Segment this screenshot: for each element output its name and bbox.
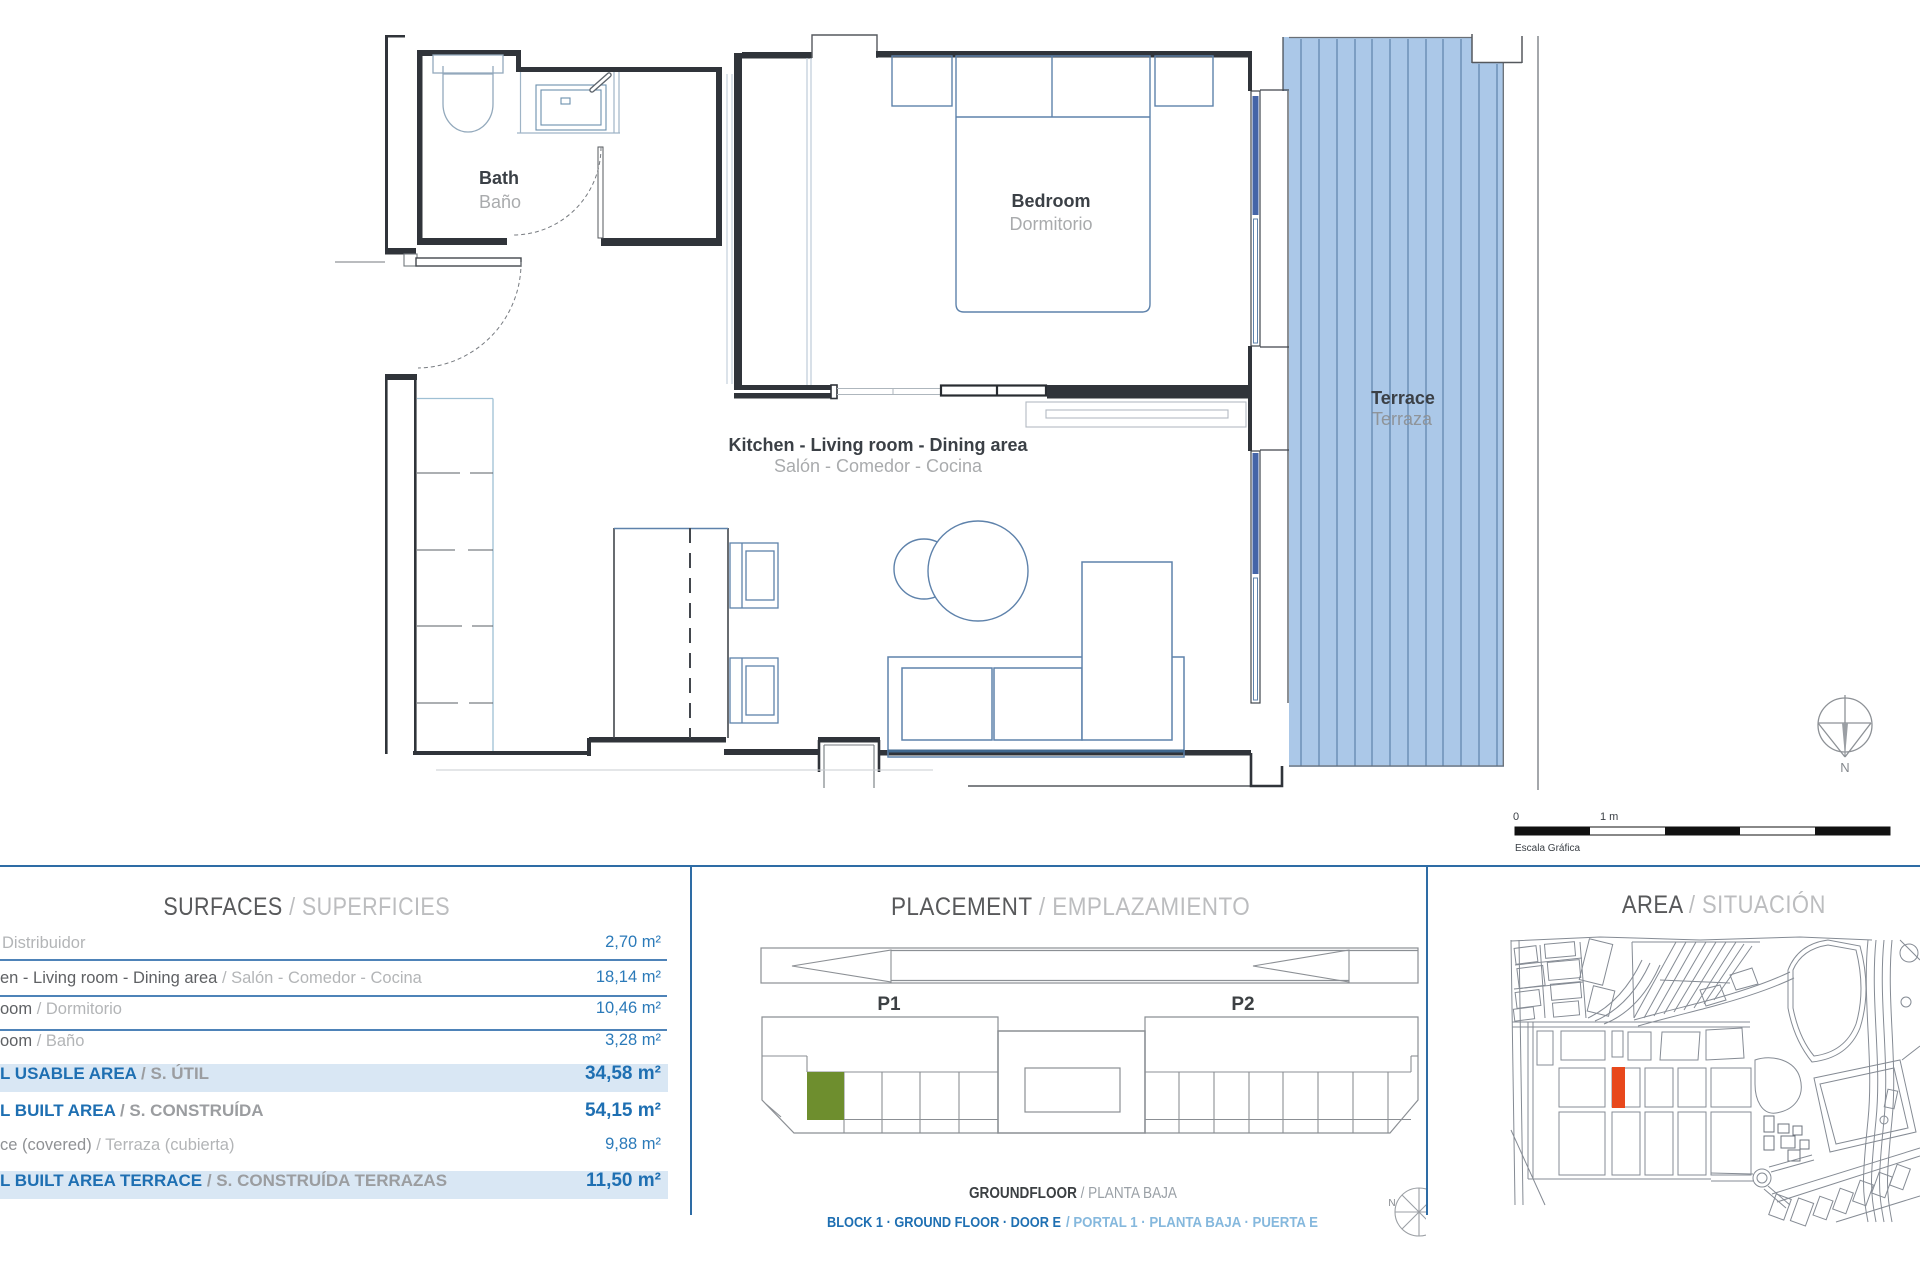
svg-text:Escala Gráfica: Escala Gráfica bbox=[1515, 843, 1580, 854]
svg-text:Terraza: Terraza bbox=[1372, 409, 1433, 429]
svg-text:/ PORTAL 1 · PLANTA BAJA · PUE: / PORTAL 1 · PLANTA BAJA · PUERTA E bbox=[1066, 1215, 1318, 1231]
svg-text:Dormitorio: Dormitorio bbox=[1009, 214, 1092, 234]
svg-text:N: N bbox=[1840, 760, 1849, 775]
svg-text:Terrace: Terrace bbox=[1371, 388, 1435, 408]
svg-text:Bath: Bath bbox=[479, 168, 519, 188]
svg-text:Baño: Baño bbox=[479, 192, 521, 212]
svg-text:0: 0 bbox=[1513, 811, 1519, 823]
svg-text:Salón - Comedor - Cocina: Salón - Comedor - Cocina bbox=[774, 456, 983, 476]
svg-text:GROUNDFLOOR / PLANTA BAJA: GROUNDFLOOR / PLANTA BAJA bbox=[969, 1185, 1178, 1202]
svg-text:1 m: 1 m bbox=[1600, 811, 1618, 823]
svg-text:Bedroom: Bedroom bbox=[1011, 191, 1090, 211]
svg-text:N: N bbox=[1388, 1198, 1395, 1209]
svg-text:P2: P2 bbox=[1231, 994, 1254, 1015]
svg-text:BLOCK 1 · GROUND FLOOR · DOOR: BLOCK 1 · GROUND FLOOR · DOOR E bbox=[827, 1215, 1061, 1231]
svg-text:Kitchen - Living room - Dining: Kitchen - Living room - Dining area bbox=[728, 435, 1028, 455]
svg-text:P1: P1 bbox=[877, 994, 901, 1015]
